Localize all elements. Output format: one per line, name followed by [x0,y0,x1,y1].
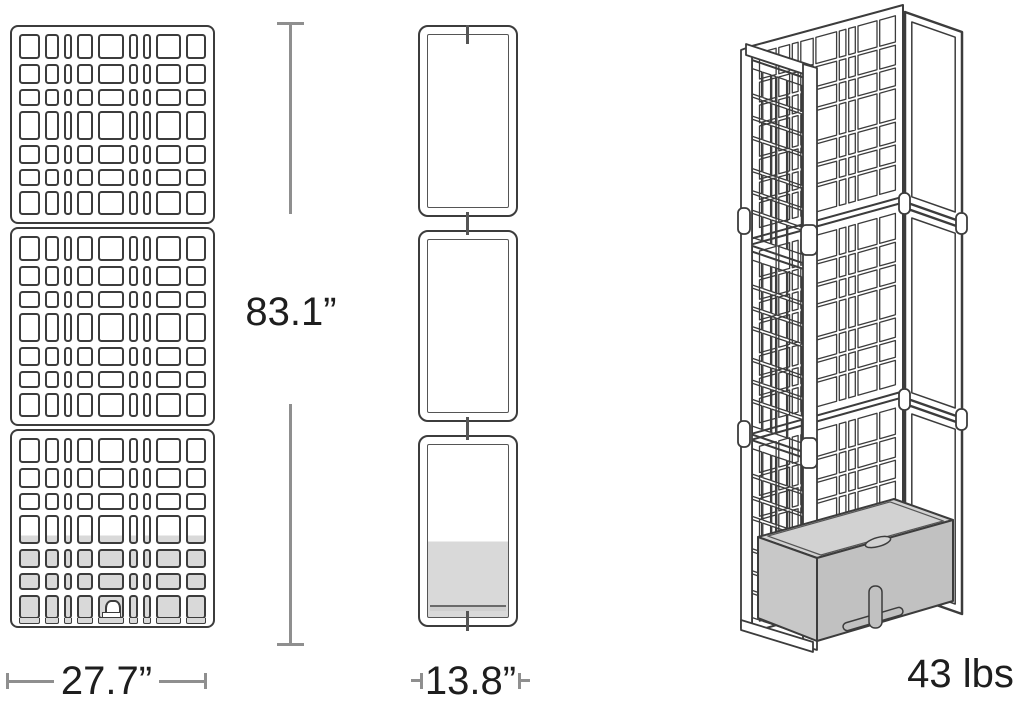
lattice-cell [19,493,40,510]
lattice-cell [64,64,71,83]
planter-lip [64,618,71,624]
lattice-cell [129,493,138,510]
lattice-cell [186,111,206,140]
lattice-cell [19,89,40,106]
lattice-cell [45,595,59,619]
lattice-cell [143,313,152,342]
lattice-cell [129,393,138,417]
lattice-cell [143,169,152,186]
lattice-cell [98,291,125,308]
lattice-cell [156,236,181,261]
module-connector-pin [466,417,469,440]
lattice-cell [19,468,40,487]
lattice-cell [64,34,71,59]
lattice-cell [186,438,206,463]
lattice-cell [64,493,71,510]
lattice-cell [143,468,152,487]
lattice-cell [77,515,93,544]
lattice-cell [45,145,59,164]
lattice-cell [98,313,125,342]
lattice-cell [77,468,93,487]
width-dimension-line-left [9,680,54,683]
lattice-cell [45,468,59,487]
lattice-cell [156,266,181,285]
lattice-cell [98,371,125,388]
lattice-cell [156,111,181,140]
lattice-cell [143,266,152,285]
lattice-cell [98,236,125,261]
lattice-cell [156,438,181,463]
lattice-cell [45,549,59,568]
height-dimension-line-top [289,24,292,214]
lattice-cell [143,549,152,568]
lattice-cell [156,64,181,83]
lattice-cell [64,236,71,261]
lattice-cell [98,64,125,83]
lattice-cell [64,191,71,215]
lattice-cell [19,169,40,186]
lattice-cell [19,266,40,285]
lattice-cell [186,468,206,487]
lattice-cell [98,493,125,510]
lattice-cell [98,549,125,568]
lattice-cell [77,438,93,463]
lattice-cell [45,89,59,106]
lattice-cell [64,89,71,106]
lattice-cell [98,468,125,487]
lattice-cell [64,468,71,487]
module-connector-pin [466,25,469,44]
side-panel-module [418,435,518,627]
width-dimension: 27.7” [6,658,207,704]
lattice-cell [19,515,40,544]
lattice-cell [156,291,181,308]
lattice-cell [156,191,181,215]
lattice-cell [45,493,59,510]
lattice-cell [129,595,138,619]
lattice-cell [19,438,40,463]
lattice-cell [19,236,40,261]
lattice-cell [19,191,40,215]
lattice-cell [64,313,71,342]
lattice-cell [186,291,206,308]
lattice-cell [129,468,138,487]
lattice-cell [19,347,40,366]
lattice-cell [19,145,40,164]
front-panel-module [10,25,215,224]
lattice-cell [64,266,71,285]
lattice-cell [143,191,152,215]
width-dimension-tick-right [204,673,207,689]
lattice-cell [143,111,152,140]
lattice-cell [19,111,40,140]
lattice-cell [45,515,59,544]
lattice-cell [98,169,125,186]
lattice-cell [129,89,138,106]
lattice-cell [98,595,125,619]
lattice-cell [156,145,181,164]
lattice-cell [156,595,181,619]
lattice-cell [45,266,59,285]
lattice-cell [129,34,138,59]
lattice-cell [143,236,152,261]
lattice-cell [77,595,93,619]
module-connector-pin [466,611,469,631]
side-panel-module [418,230,518,422]
lattice-cell [19,393,40,417]
lattice-cell [129,169,138,186]
lattice-cell [186,266,206,285]
lattice-cell [143,515,152,544]
lattice-cell [143,393,152,417]
lattice-cell [45,191,59,215]
lattice-cell [64,111,71,140]
lattice-cell [64,515,71,544]
depth-dimension-tick-left [420,673,423,689]
lattice-cell [129,236,138,261]
lattice-cell [129,573,138,590]
lattice-cell [45,111,59,140]
lattice-cell [129,191,138,215]
planter-lip [156,618,181,624]
lattice-cell [186,573,206,590]
lattice-cell [45,313,59,342]
lattice-cell [143,291,152,308]
lattice-cell [98,515,125,544]
lattice-cell [129,266,138,285]
lattice-cell [19,573,40,590]
lattice-cell [186,313,206,342]
lattice-cell [186,371,206,388]
lattice-cell [186,64,206,83]
depth-dimension-label: 13.8” [425,659,516,703]
lattice-cell [98,89,125,106]
planter-lip [19,618,40,624]
lattice-cell [129,347,138,366]
lattice-cell [19,549,40,568]
lattice-cell [98,266,125,285]
lattice-cell [156,493,181,510]
lattice-cell [129,111,138,140]
lattice-cell [186,393,206,417]
width-dimension-line-right [159,680,204,683]
lattice-cell [77,145,93,164]
lattice-cell [19,371,40,388]
lattice-cell [19,64,40,83]
planter-lip [45,618,59,624]
front-panel-module [10,429,215,628]
lattice-cell [77,89,93,106]
weight-label: 43 lbs [893,652,1024,696]
lattice-cell [129,313,138,342]
lattice-cell [156,89,181,106]
lattice-cell [98,145,125,164]
lattice-cell [45,34,59,59]
lattice-cell [77,313,93,342]
lattice-cell [156,169,181,186]
module-connector-pin [466,212,469,235]
lattice-cell [45,347,59,366]
lattice-cell [186,145,206,164]
lattice-cell [45,371,59,388]
lattice-cell [156,573,181,590]
lattice-cell [143,34,152,59]
lattice-cell [129,549,138,568]
lattice-cell [98,191,125,215]
lattice-cell [45,291,59,308]
lattice-cell [19,34,40,59]
lattice-cell [64,169,71,186]
lattice-cell [64,595,71,619]
perspective-view [728,0,1024,660]
side-panel-opening [427,239,509,413]
lattice-cell [64,371,71,388]
lattice-cell [143,595,152,619]
lattice-cell [186,34,206,59]
lattice-cell [64,549,71,568]
lattice-cell [156,468,181,487]
lattice-cell [143,347,152,366]
lattice-cell [186,191,206,215]
planter-lip [129,618,138,624]
lattice-cell [64,347,71,366]
lattice-cell [98,438,125,463]
lattice-cell [77,347,93,366]
lattice-cell [156,347,181,366]
planter-lip [98,618,125,624]
lattice-cell [156,515,181,544]
lattice-cell [143,371,152,388]
lattice-cell [77,34,93,59]
lattice-cell [186,347,206,366]
lattice-cell [45,573,59,590]
side-panel-opening [427,34,509,208]
lattice-cell [45,169,59,186]
lattice-cell [19,291,40,308]
lattice-cell [19,595,40,619]
lattice-cell [156,371,181,388]
depth-dimension: 13.8” [420,658,521,704]
lattice-cell [77,266,93,285]
height-dimension-line-bottom [289,404,292,644]
lattice-cell [64,145,71,164]
lattice-cell [77,549,93,568]
lattice-cell [156,549,181,568]
height-dimension-label: 83.1” [221,290,361,334]
planter-lip [186,618,206,624]
lattice-cell [143,573,152,590]
lattice-cell [129,64,138,83]
lattice-cell [64,573,71,590]
front-panel-module [10,227,215,426]
side-planter-fill [427,444,509,618]
lattice-cell [186,595,206,619]
depth-dimension-tick-right [518,673,521,689]
side-panel-module [418,25,518,217]
lattice-cell [45,64,59,83]
lattice-cell [64,438,71,463]
lattice-cell [143,89,152,106]
front-view-panel [10,25,215,628]
lattice-cell [98,111,125,140]
lattice-cell [45,438,59,463]
lattice-cell [98,347,125,366]
lattice-cell [129,291,138,308]
planter-lip [143,618,152,624]
lattice-cell [77,111,93,140]
lattice-cell [186,169,206,186]
lattice-cell [129,371,138,388]
lattice-cell [186,549,206,568]
drainage-arch-base [102,612,121,617]
lattice-cell [186,89,206,106]
lattice-cell [98,34,125,59]
lattice-cell [98,393,125,417]
lattice-cell [143,438,152,463]
lattice-cell [143,493,152,510]
lattice-cell [186,236,206,261]
planter-lip [77,618,93,624]
lattice-cell [77,191,93,215]
lattice-cell [77,169,93,186]
lattice-cell [77,573,93,590]
lattice-cell [186,515,206,544]
lattice-cell [64,291,71,308]
lattice-cell [19,313,40,342]
lattice-cell [186,493,206,510]
lattice-cell [77,64,93,83]
lattice-cell [129,145,138,164]
lattice-cell [156,313,181,342]
lattice-cell [45,393,59,417]
lattice-cell [129,438,138,463]
width-dimension-label: 27.7” [61,659,152,703]
lattice-cell [45,236,59,261]
lattice-cell [143,64,152,83]
product-dimension-diagram: 83.1” 27.7” 13.8” 43 lbs [0,0,1024,708]
lattice-cell [77,493,93,510]
lattice-cell [129,515,138,544]
lattice-cell [77,291,93,308]
lattice-cell [98,573,125,590]
lattice-cell [77,236,93,261]
lattice-cell [156,34,181,59]
lattice-cell [77,371,93,388]
lattice-cell [64,393,71,417]
lattice-cell [77,393,93,417]
lattice-cell [156,393,181,417]
side-view-panel [418,25,518,628]
lattice-cell [143,145,152,164]
